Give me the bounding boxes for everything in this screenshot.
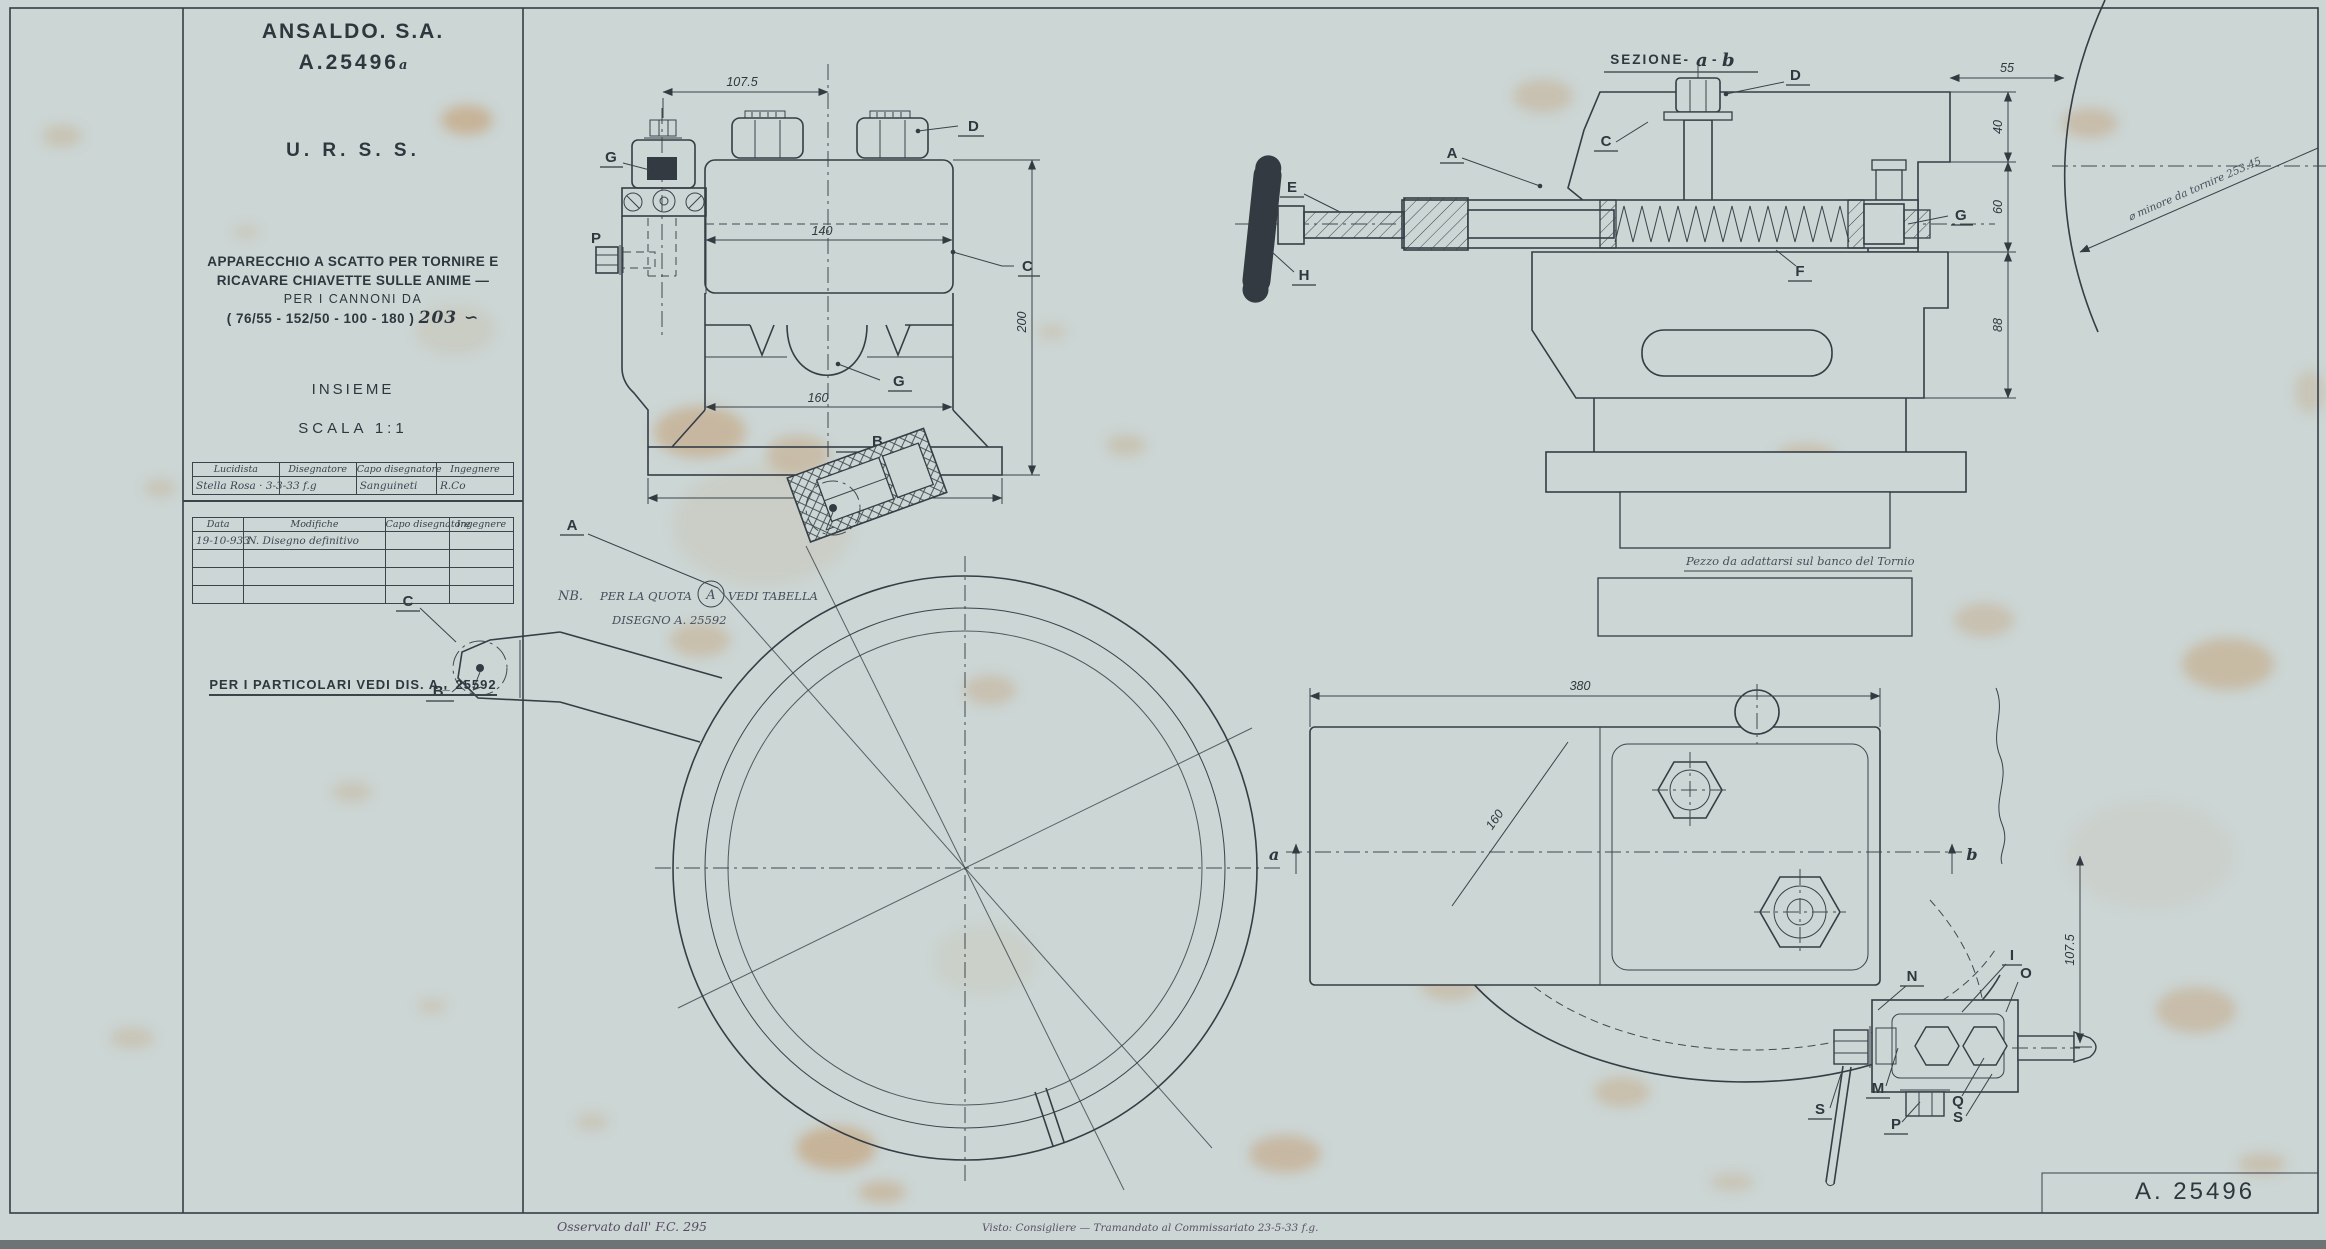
ring-note-part1: PER LA QUOTA [599, 589, 692, 603]
corner-note: ⌀ minore da tornire 253.45 [2126, 155, 2263, 224]
sig-header-capo: Capo disegnatore [356, 463, 436, 477]
rev-cell-date: 19-10-933 [193, 532, 244, 550]
assembly-label: INSIEME [183, 381, 523, 398]
section-label-h: H [1299, 267, 1310, 284]
company-name: ANSALDO. S.A. [183, 20, 523, 44]
drawing-number: A.25496a [183, 51, 523, 75]
section-dim-88: 88 [1991, 318, 2005, 332]
ring-note-line2: DISEGNO A. 25592 [611, 613, 727, 627]
titleblock-rule [183, 500, 523, 502]
section-label-c: C [1601, 133, 1612, 150]
country-label: U. R. S. S. [183, 140, 523, 162]
rev-cell-modifica: N. Disegno definitivo [244, 532, 385, 550]
plan-label-a: a [1269, 845, 1279, 864]
front-dim-top: 107.5 [726, 75, 757, 89]
ring-note-nb: NB. [557, 589, 583, 604]
scan-edge [0, 1240, 2326, 1249]
front-label-p: P [591, 230, 601, 247]
front-dim-upper: 140 [812, 224, 833, 238]
front-label-c: C [1022, 258, 1033, 275]
plan-dim-width: 380 [1570, 679, 1591, 693]
front-dim-lower: 160 [808, 391, 829, 405]
rev-header-ingegnere: Ingegnere [449, 518, 513, 532]
description-line3: PER I CANNONI DA [186, 290, 520, 309]
ring-label-a: A [567, 517, 578, 534]
front-label-d: D [968, 118, 979, 135]
rev-header-modifiche: Modifiche [244, 518, 385, 532]
break-line [1996, 688, 2005, 864]
details-reference-note: PER I PARTICOLARI VEDI DIS. A _ 25592 [183, 677, 523, 692]
drawing-number-suffix: a [399, 58, 407, 73]
description-block: APPARECCHIO A SCATTO PER TORNIRE E RICAV… [186, 252, 520, 328]
section-label-d: D [1790, 67, 1801, 84]
description-calibers: ( 76/55 - 152/50 - 100 - 180 ) [227, 311, 415, 326]
plan-label-n: N [1907, 968, 1918, 985]
scale-label: SCALA 1:1 [183, 420, 523, 437]
plan-label-s2: S [1953, 1109, 1963, 1126]
description-line2: RICAVARE CHIAVETTE SULLE ANIME — [186, 271, 520, 290]
section-ab-view: SEZIONE- a - b [1235, 50, 2064, 636]
section-dim-55: 55 [2000, 61, 2014, 75]
section-dim-60: 60 [1991, 200, 2005, 214]
sig-header-lucidista: Lucidista [193, 463, 280, 477]
front-label-g1: G [605, 149, 617, 166]
plan-label-o: O [2020, 965, 2032, 982]
plan-label-b: b [1966, 845, 1977, 864]
revision-table: Data Modifiche Capo disegnatore Ingegner… [192, 517, 514, 604]
sig-header-disegnatore: Disegnatore [279, 463, 356, 477]
front-dim-height: 200 [1015, 312, 1029, 334]
sig-cell-capo: Sanguineti [356, 477, 436, 495]
ring-note: NB. PER LA QUOTA A VEDI TABELLA DISEGNO … [557, 581, 818, 627]
footer-handwriting-right: Visto: Consigliere — Tramandato al Commi… [982, 1222, 1319, 1234]
plan-label-m: M [1872, 1080, 1885, 1097]
section-title-prefix: SEZIONE- [1610, 52, 1690, 67]
blueprint-sheet: .ln{stroke:#353d45;fill:none;stroke-widt… [0, 0, 2326, 1249]
plan-label-s1: S [1815, 1101, 1825, 1118]
description-line4: ( 76/55 - 152/50 - 100 - 180 ) 203 ∽ [186, 309, 520, 328]
plan-dim-right: 107.5 [2063, 934, 2077, 965]
footer-handwriting-left: Osservato dall' F.C. 295 [557, 1219, 707, 1234]
signature-table: Lucidista Disegnatore Capo disegnatore I… [192, 462, 514, 495]
section-label-f: F [1795, 263, 1804, 280]
ring-note-part2: VEDI TABELLA [728, 589, 818, 603]
handle-grip [1240, 154, 1283, 304]
sig-cell-lucidista: Stella Rosa · 3-3-33 f.g [193, 477, 280, 495]
rev-header-capo: Capo disegnatore [385, 518, 449, 532]
plan-label-i: I [2010, 947, 2014, 964]
sig-header-ingegnere: Ingegnere [436, 463, 513, 477]
section-dim-40: 40 [1991, 120, 2005, 134]
sig-cell-ingegnere: R.Co [436, 477, 513, 495]
description-caliber-203: 203 ∽ [419, 308, 480, 328]
front-label-g2: G [893, 373, 905, 390]
plan-view: 380 160 a b [1269, 679, 2096, 1186]
corner-arc-detail: ⌀ minore da tornire 253.45 [2052, 0, 2326, 332]
plan-label-p: P [1891, 1116, 1901, 1133]
section-title-b: b [1722, 50, 1735, 71]
front-elevation-view: 107.5 G P [591, 64, 1040, 514]
footer-drawing-number: A. 25496 [2088, 1178, 2302, 1206]
section-label-a: A [1447, 145, 1458, 162]
description-line1: APPARECCHIO A SCATTO PER TORNIRE E [186, 252, 520, 271]
ring-note-circled-a: A [705, 588, 715, 603]
section-label-e: E [1287, 179, 1297, 196]
section-label-g: G [1955, 207, 1967, 224]
drawing-number-text: A.25496 [299, 51, 399, 74]
section-title-dash: - [1712, 52, 1719, 67]
section-note: Pezzo da adattarsi sul banco del Tornio [1685, 554, 1915, 568]
rev-header-data: Data [193, 518, 244, 532]
drawing-canvas: .ln{stroke:#353d45;fill:none;stroke-widt… [0, 0, 2326, 1249]
